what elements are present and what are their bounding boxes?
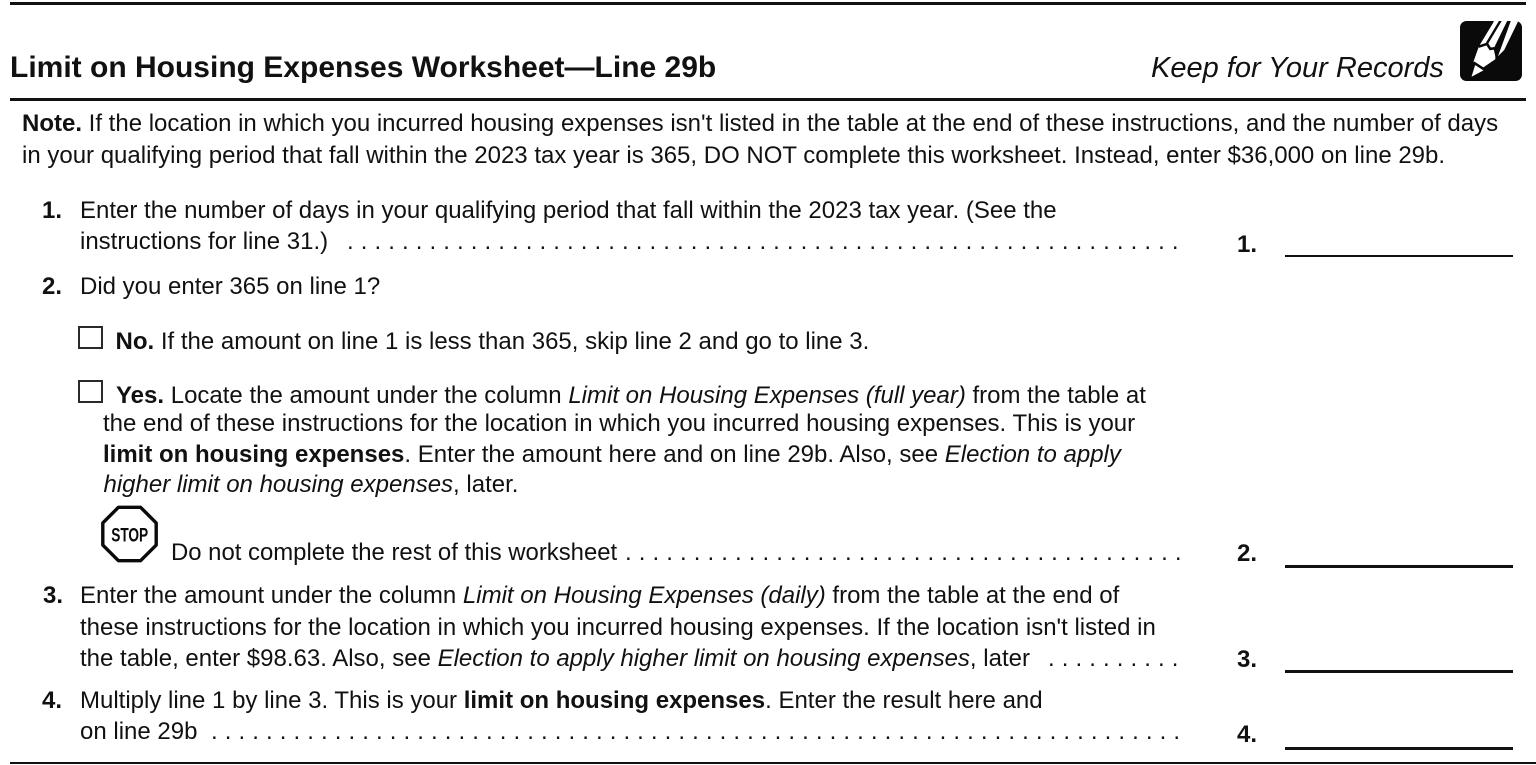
svg-text:STOP: STOP [111,524,148,546]
